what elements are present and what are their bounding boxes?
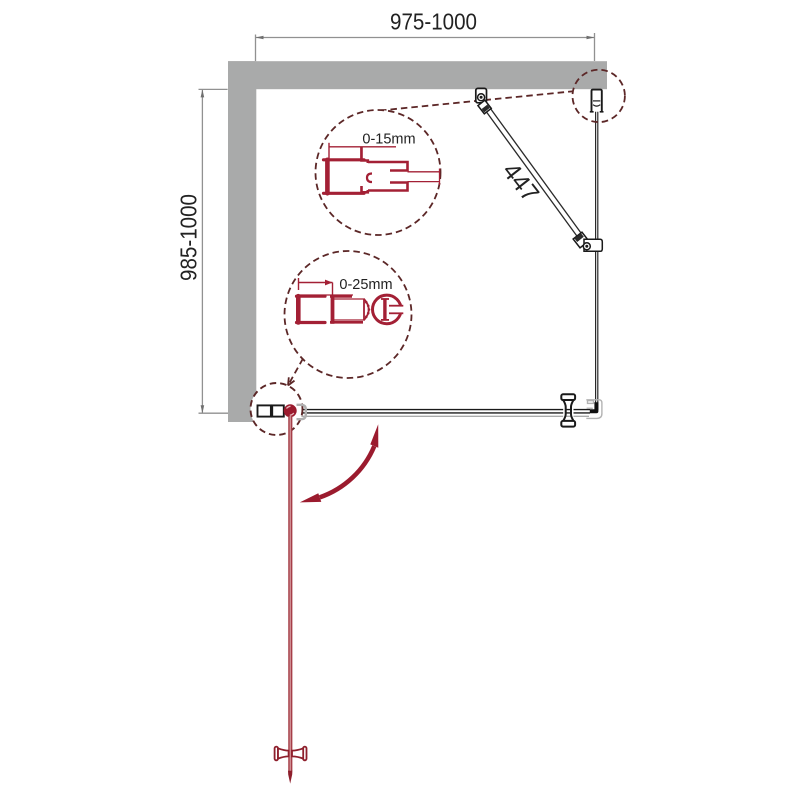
svg-text:0-25mm: 0-25mm: [339, 277, 392, 293]
svg-text:0-15mm: 0-15mm: [362, 132, 415, 148]
svg-text:985-1000: 985-1000: [176, 194, 202, 281]
svg-text:975-1000: 975-1000: [390, 9, 477, 35]
